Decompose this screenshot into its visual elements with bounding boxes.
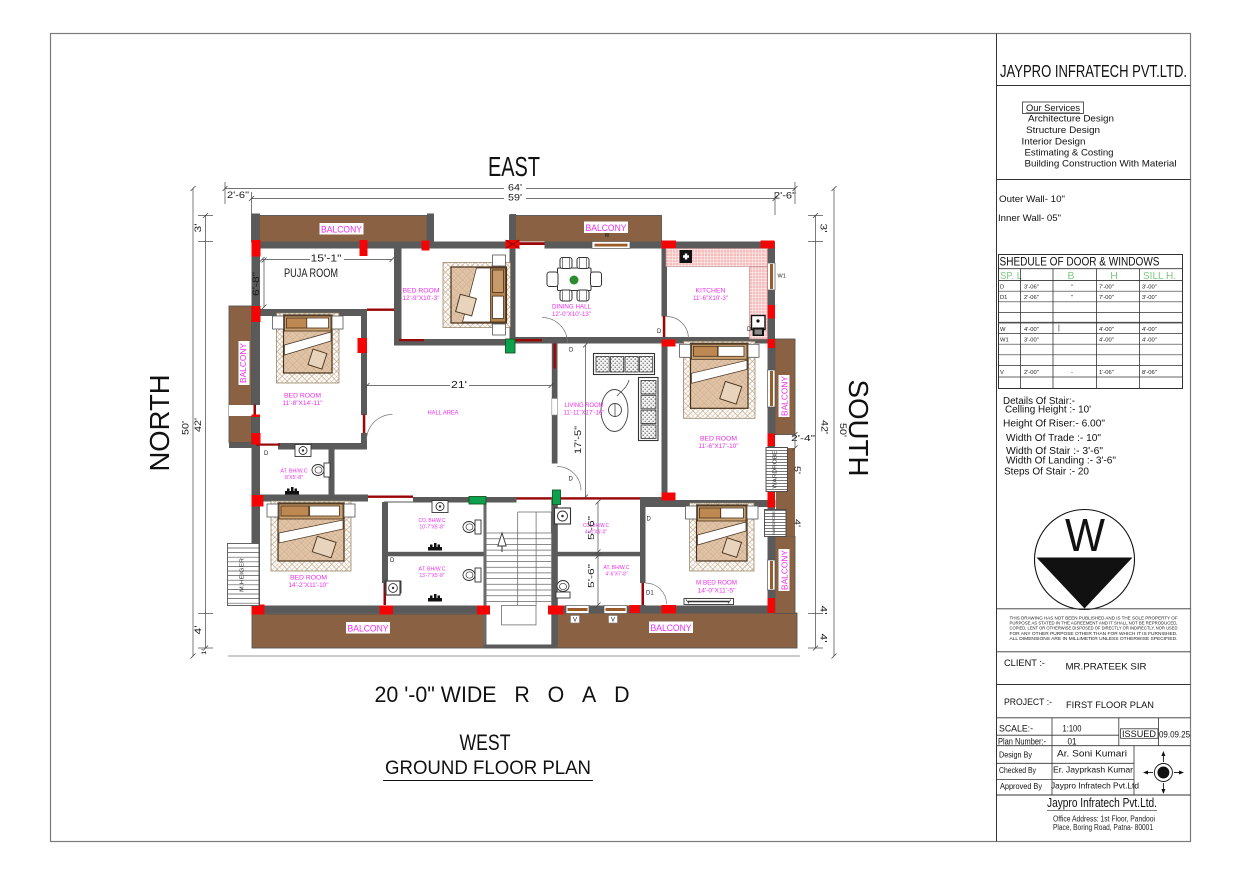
svg-text:V: V xyxy=(573,618,577,624)
svg-text:12'-9"X10'-3": 12'-9"X10'-3" xyxy=(403,295,440,302)
svg-text:GROUND FLOOR PLAN: GROUND FLOOR PLAN xyxy=(385,758,591,779)
svg-text:3': 3' xyxy=(819,224,829,233)
svg-text:PROJECT :-: PROJECT :- xyxy=(1004,697,1052,708)
svg-text:4'-00": 4'-00" xyxy=(1024,327,1039,333)
svg-text:3'-00": 3'-00" xyxy=(1142,295,1157,301)
svg-text:59': 59' xyxy=(508,193,522,203)
svg-text:BED ROOM: BED ROOM xyxy=(284,393,321,400)
svg-text:17'-5": 17'-5" xyxy=(573,426,583,454)
svg-text:BALCONY: BALCONY xyxy=(321,224,363,235)
svg-text:1:100: 1:100 xyxy=(1063,724,1082,735)
svg-text:Interior Design: Interior Design xyxy=(1022,137,1086,148)
svg-text:LIVING ROOM: LIVING ROOM xyxy=(565,402,604,409)
svg-text:15'-1": 15'-1" xyxy=(311,253,342,265)
svg-text:Building Construction With Mat: Building Construction With Material xyxy=(1025,159,1177,170)
svg-text:MR.PRATEEK SIR: MR.PRATEEK SIR xyxy=(1066,662,1147,673)
svg-text:KITCHEN: KITCHEN xyxy=(696,288,726,295)
svg-text:ALL DIMENSIONS ARE IN MILLIMET: ALL DIMENSIONS ARE IN MILLIMETER UNLESS … xyxy=(1010,636,1178,641)
svg-text:D: D xyxy=(390,558,395,564)
svg-text:13'-7"X5'-8": 13'-7"X5'-8" xyxy=(420,573,445,579)
svg-text:4': 4' xyxy=(193,625,203,634)
svg-text:WARDROBE: WARDROBE xyxy=(773,450,779,489)
svg-text:Steps Of Stair :- 20: Steps Of Stair :- 20 xyxy=(1004,467,1089,478)
svg-text:": " xyxy=(1071,285,1073,291)
svg-text:4'-00": 4'-00" xyxy=(1099,327,1114,333)
svg-text:Approved By: Approved By xyxy=(1000,781,1043,791)
svg-text:64': 64' xyxy=(508,183,522,193)
svg-text:Design By: Design By xyxy=(999,750,1033,760)
svg-text:Height Of Riser:- 6.00": Height Of Riser:- 6.00" xyxy=(1003,419,1105,430)
svg-text:Inner Wall- 05": Inner Wall- 05" xyxy=(998,213,1061,224)
svg-text:Estimating & Costing: Estimating & Costing xyxy=(1025,148,1114,159)
svg-text:5': 5' xyxy=(793,466,802,475)
svg-text:D: D xyxy=(657,329,662,335)
svg-text:3'-00": 3'-00" xyxy=(1024,338,1039,344)
svg-text:4'-00": 4'-00" xyxy=(1099,338,1114,344)
svg-text:W1: W1 xyxy=(1000,338,1009,344)
svg-text:50': 50' xyxy=(181,421,192,435)
svg-text:WEST: WEST xyxy=(460,730,511,755)
svg-text:FIRST FLOOR PLAN: FIRST FLOOR PLAN xyxy=(1066,700,1154,711)
svg-text:ISSUED: ISSUED xyxy=(1122,729,1156,740)
svg-text:": " xyxy=(1071,295,1073,301)
svg-text:4': 4' xyxy=(793,519,802,528)
svg-text:BALCONY: BALCONY xyxy=(651,623,693,634)
svg-text:Ar. Soni Kumari: Ar. Soni Kumari xyxy=(1057,749,1127,760)
svg-text:EAST: EAST xyxy=(488,151,540,182)
svg-text:1': 1' xyxy=(201,649,208,655)
svg-text:4'-6"X7'-8": 4'-6"X7'-8" xyxy=(606,572,628,578)
svg-text:HALL AREA: HALL AREA xyxy=(428,410,460,417)
svg-text:11'-6"X17'-10": 11'-6"X17'-10" xyxy=(699,443,739,450)
svg-text:BALCONY: BALCONY xyxy=(348,624,390,635)
svg-text:4'-00": 4'-00" xyxy=(1142,327,1157,333)
svg-text:NORTH: NORTH xyxy=(144,375,175,472)
svg-text:Checked By: Checked By xyxy=(999,765,1037,775)
svg-text:21': 21' xyxy=(451,379,467,391)
svg-text:V: V xyxy=(611,618,615,624)
svg-text:Jaypro Infratech Pvt.Ltd.: Jaypro Infratech Pvt.Ltd. xyxy=(1047,796,1157,810)
svg-text:Er. Jayprkash Kumar: Er. Jayprkash Kumar xyxy=(1053,765,1133,775)
svg-text:11'-6"X10'-3": 11'-6"X10'-3" xyxy=(693,295,728,302)
svg-text:Jaypro Infratech Pvt.Ltd: Jaypro Infratech Pvt.Ltd xyxy=(1051,781,1139,791)
svg-text:11'-11"X17'-16": 11'-11"X17'-16" xyxy=(564,410,605,417)
svg-text:2'-00": 2'-00" xyxy=(1024,370,1039,376)
svg-text:Our Services: Our Services xyxy=(1026,103,1080,114)
svg-text:M.HEIGER: M.HEIGER xyxy=(240,557,246,592)
svg-text:3'-00": 3'-00" xyxy=(1142,285,1157,291)
svg-text:11'-8"X14'-11": 11'-8"X14'-11" xyxy=(283,400,323,407)
svg-text:Celling Height :- 10': Celling Height :- 10' xyxy=(1005,405,1091,416)
svg-text:-: - xyxy=(1071,370,1073,376)
svg-text:SHEDULE OF DOOR & WINDOWS: SHEDULE OF DOOR & WINDOWS xyxy=(1000,257,1160,269)
svg-text:5'-6": 5'-6" xyxy=(587,564,596,588)
svg-text:W: W xyxy=(1000,327,1006,333)
svg-text:SCALE:-: SCALE:- xyxy=(999,724,1033,735)
svg-text:BALCONY: BALCONY xyxy=(781,375,790,416)
svg-text:D: D xyxy=(569,348,574,354)
svg-text:D: D xyxy=(647,517,652,523)
svg-text:JAYPRO INFRATECH PVT.LTD.: JAYPRO INFRATECH PVT.LTD. xyxy=(1000,61,1187,81)
svg-text:D: D xyxy=(569,477,574,483)
svg-text:2'-6": 2'-6" xyxy=(774,191,796,201)
svg-text:BALCONY: BALCONY xyxy=(781,549,790,590)
svg-text:CLIENT :-: CLIENT :- xyxy=(1004,658,1045,669)
svg-text:DINING HALL: DINING HALL xyxy=(552,304,592,311)
svg-text:4': 4' xyxy=(819,634,829,643)
svg-text:WARDROBE: WARDROBE xyxy=(771,511,776,535)
svg-text:Width Of Landing :- 3'-6": Width Of Landing :- 3'-6" xyxy=(1006,456,1116,467)
svg-text:Width Of Trade :- 10": Width Of Trade :- 10" xyxy=(1006,433,1101,444)
svg-text:3': 3' xyxy=(193,223,203,232)
svg-text:D: D xyxy=(1000,285,1004,291)
svg-text:BED ROOM: BED ROOM xyxy=(403,288,440,295)
svg-text:12'-0"X10'-13": 12'-0"X10'-13" xyxy=(552,311,591,318)
svg-text:SOUTH: SOUTH xyxy=(843,380,874,477)
svg-text:14'-0"X11'-5": 14'-0"X11'-5" xyxy=(698,588,736,595)
svg-text:2'-6": 2'-6" xyxy=(227,190,249,200)
svg-text:Architecture Design: Architecture Design xyxy=(1028,114,1114,125)
svg-text:Place, Boring Road, Patna- 800: Place, Boring Road, Patna- 80001 xyxy=(1053,823,1153,832)
svg-text:09.09.25: 09.09.25 xyxy=(1159,730,1190,741)
svg-text:Structure Design: Structure Design xyxy=(1026,125,1100,136)
svg-text:AT. BH/W.C: AT. BH/W.C xyxy=(604,565,630,571)
svg-text:BED ROOM: BED ROOM xyxy=(700,436,737,443)
svg-text:Outer Wall- 10": Outer Wall- 10" xyxy=(999,194,1065,205)
svg-text:CO. BH/W.C: CO. BH/W.C xyxy=(419,518,446,524)
svg-text:7'-00": 7'-00" xyxy=(1099,295,1114,301)
svg-text:4'-00": 4'-00" xyxy=(1142,338,1157,344)
svg-text:AT. BH/W.C: AT. BH/W.C xyxy=(281,469,308,475)
svg-text:M.BED ROOM: M.BED ROOM xyxy=(696,580,737,587)
svg-text:|: | xyxy=(1058,325,1060,332)
svg-text:BED ROOM: BED ROOM xyxy=(290,575,327,582)
svg-text:20 '-0" WIDE R O A D: 20 '-0" WIDE R O A D xyxy=(375,682,630,707)
svg-text:V: V xyxy=(1000,370,1004,376)
svg-text:D1: D1 xyxy=(646,591,654,597)
svg-text:D1: D1 xyxy=(1000,295,1007,301)
svg-text:D: D xyxy=(747,327,752,333)
svg-text:42': 42' xyxy=(819,420,830,434)
svg-text:7'-00": 7'-00" xyxy=(1099,285,1114,291)
svg-text:W: W xyxy=(1065,509,1106,561)
svg-text:14'-2"X11'-10": 14'-2"X11'-10" xyxy=(289,582,329,589)
svg-text:10'-7"X5'-8": 10'-7"X5'-8" xyxy=(420,525,445,531)
svg-text:42': 42' xyxy=(193,418,204,432)
svg-text:W: W xyxy=(605,233,610,239)
svg-text:1'-06": 1'-06" xyxy=(1099,370,1114,376)
svg-text:PUJA ROOM: PUJA ROOM xyxy=(284,268,338,280)
svg-text:D: D xyxy=(264,451,269,457)
svg-text:W1: W1 xyxy=(778,274,786,280)
svg-text:3'-06": 3'-06" xyxy=(1024,285,1039,291)
svg-text:8'-06": 8'-06" xyxy=(1142,370,1157,376)
svg-text:AT. BH/W.C: AT. BH/W.C xyxy=(419,567,446,573)
svg-text:6'-8": 6'-8" xyxy=(251,272,261,296)
svg-text:2'-06": 2'-06" xyxy=(1024,295,1039,301)
svg-text:8'X5'-8": 8'X5'-8" xyxy=(285,475,303,481)
svg-text:BALCONY: BALCONY xyxy=(239,342,248,383)
svg-text:5'-6": 5'-6" xyxy=(587,516,596,540)
